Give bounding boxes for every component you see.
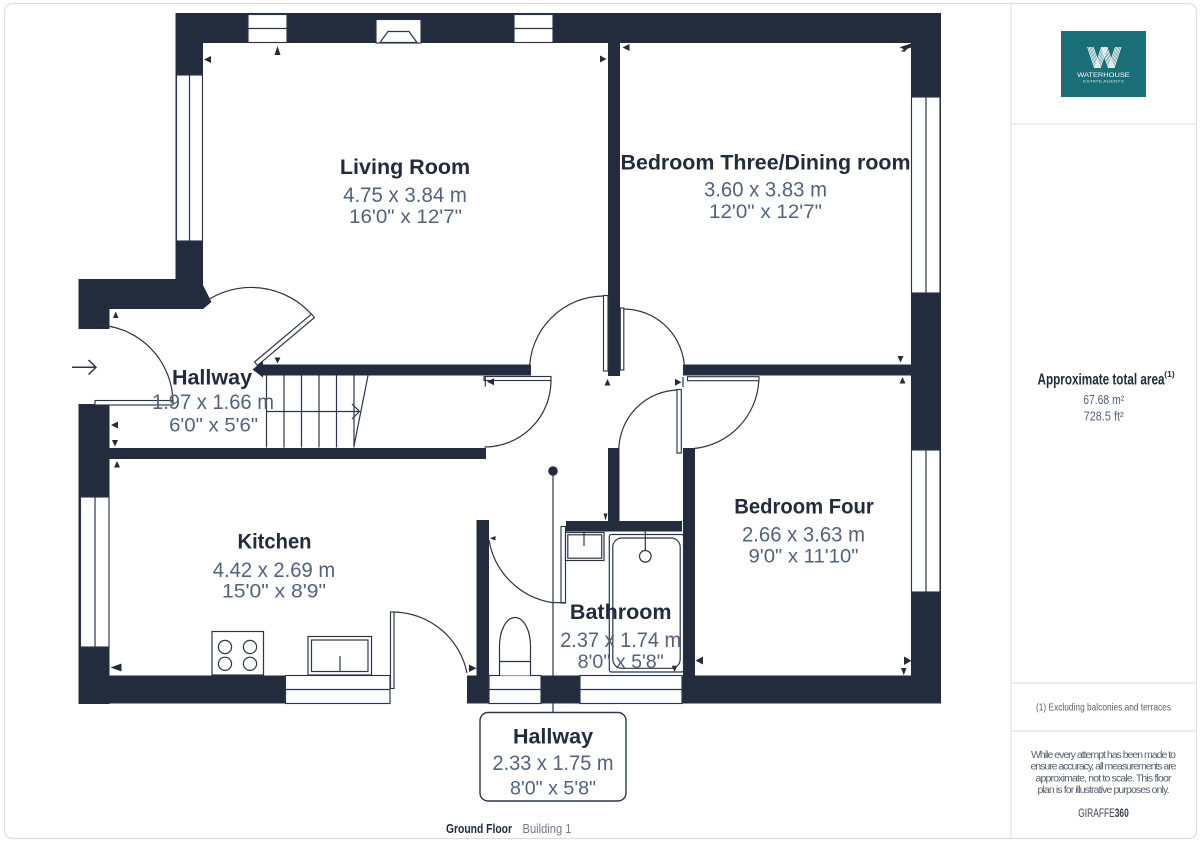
svg-text:Ground Floor: Ground Floor <box>446 821 512 836</box>
svg-text:While every attempt has been m: While every attempt has been made to <box>1031 749 1176 761</box>
svg-text:2.37 x 1.74 m: 2.37 x 1.74 m <box>560 628 681 652</box>
svg-text:4.42 x 2.69 m: 4.42 x 2.69 m <box>213 558 336 582</box>
svg-text:728.5 ft²: 728.5 ft² <box>1084 410 1124 424</box>
svg-text:15'0" x 8'9": 15'0" x 8'9" <box>222 582 326 603</box>
svg-text:Bedroom Three/Dining room: Bedroom Three/Dining room <box>621 151 911 175</box>
svg-text:3.60 x 3.83 m: 3.60 x 3.83 m <box>704 178 827 202</box>
svg-text:Hallway: Hallway <box>172 366 252 390</box>
svg-text:2.66 x 3.63 m: 2.66 x 3.63 m <box>742 523 865 547</box>
svg-text:16'0" x 12'7": 16'0" x 12'7" <box>349 207 462 228</box>
svg-text:(1) Excluding balconies and te: (1) Excluding balconies and terraces <box>1036 702 1171 714</box>
svg-text:Kitchen: Kitchen <box>238 529 312 553</box>
svg-text:GIRAFFE360: GIRAFFE360 <box>1078 808 1129 820</box>
svg-text:ensure accuracy, all measureme: ensure accuracy, all measurements are <box>1031 761 1177 773</box>
svg-text:Bedroom Four: Bedroom Four <box>734 495 874 519</box>
svg-text:ESTATE AGENTS: ESTATE AGENTS <box>1083 78 1125 83</box>
svg-text:67.68 m²: 67.68 m² <box>1083 393 1124 407</box>
svg-text:9'0" x 11'10": 9'0" x 11'10" <box>749 547 859 568</box>
svg-text:8'0" x 5'8": 8'0" x 5'8" <box>578 652 664 673</box>
svg-text:2.33 x 1.75 m: 2.33 x 1.75 m <box>493 751 614 775</box>
svg-text:4.75 x 3.84 m: 4.75 x 3.84 m <box>343 183 467 207</box>
svg-text:plan is for illustrative purpo: plan is for illustrative purposes only. <box>1038 784 1170 796</box>
svg-text:6'0" x 5'6": 6'0" x 5'6" <box>169 416 258 437</box>
svg-text:Bathroom: Bathroom <box>570 600 672 624</box>
svg-text:Living Room: Living Room <box>340 155 470 179</box>
svg-text:Building 1: Building 1 <box>523 821 572 836</box>
svg-text:Approximate total area: Approximate total area <box>1038 372 1165 389</box>
svg-text:8'0" x 5'8": 8'0" x 5'8" <box>510 779 596 800</box>
svg-text:approximate, not to scale. Thi: approximate, not to scale. This floor <box>1036 772 1173 784</box>
svg-text:1.97 x 1.66 m: 1.97 x 1.66 m <box>152 390 274 414</box>
svg-text:(1): (1) <box>1164 369 1175 379</box>
svg-text:Hallway: Hallway <box>513 725 593 749</box>
svg-text:12'0" x 12'7": 12'0" x 12'7" <box>709 202 822 223</box>
